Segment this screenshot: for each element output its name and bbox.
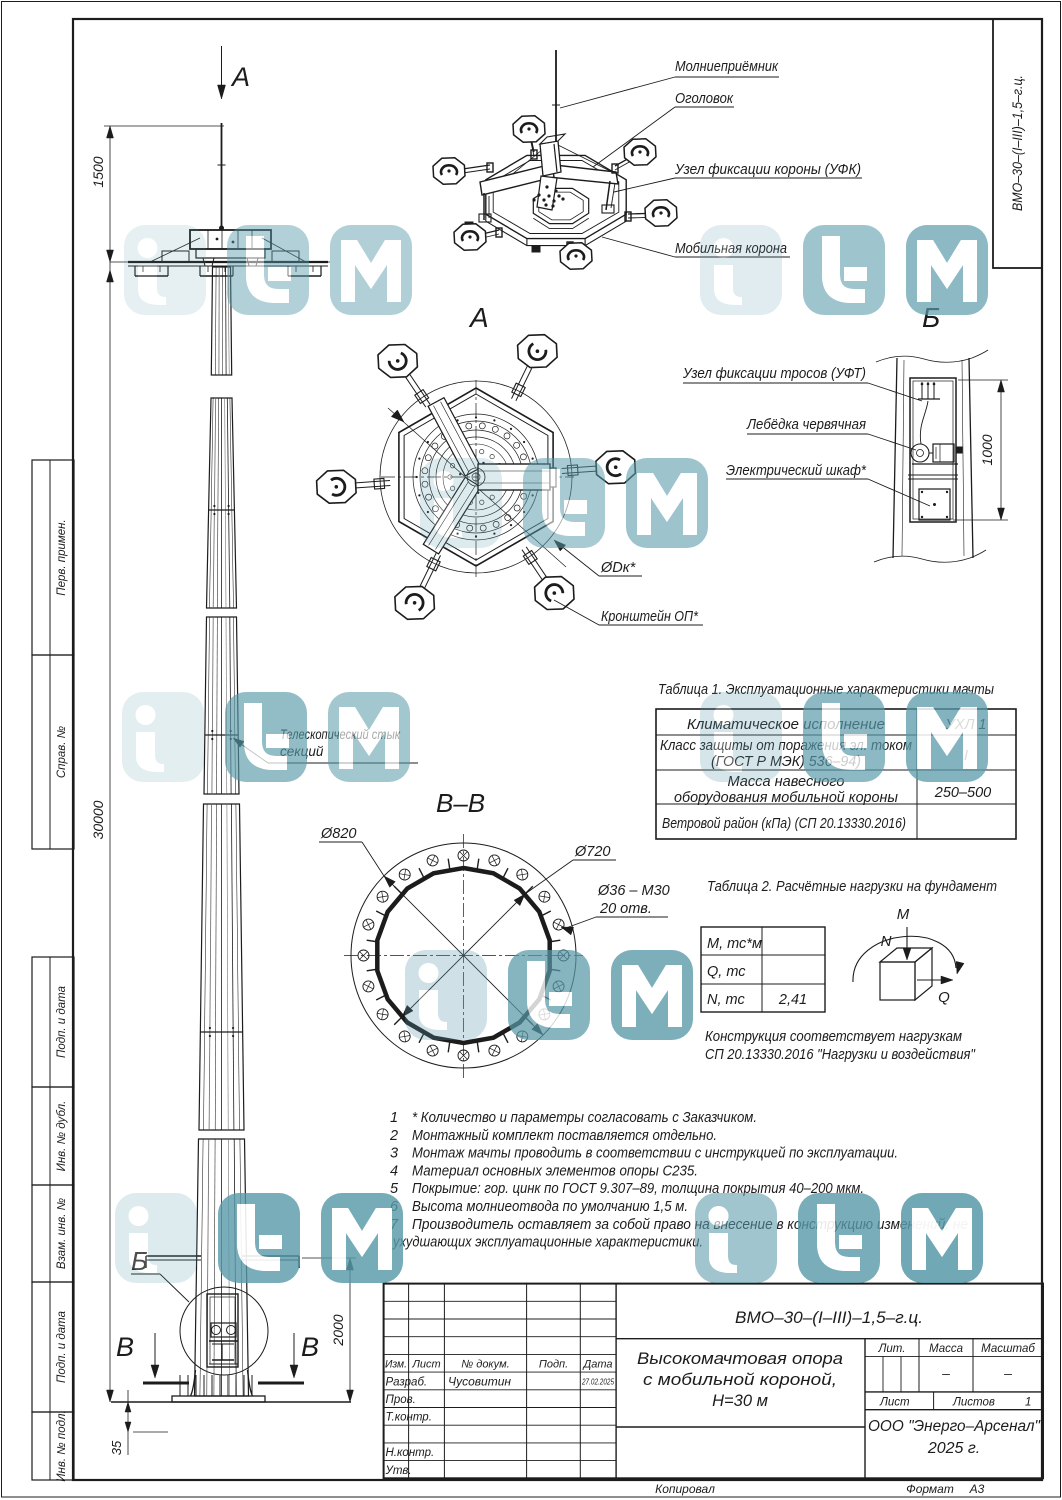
svg-text:с мобильной короной,: с мобильной короной, xyxy=(643,1371,837,1389)
svg-text:М: М xyxy=(897,906,910,923)
svg-text:1: 1 xyxy=(1025,1397,1031,1409)
svg-text:Электрический шкаф*: Электрический шкаф* xyxy=(726,463,867,479)
svg-text:20 отв.: 20 отв. xyxy=(599,901,652,917)
svg-text:Покрытие: гор. цинк по ГОСТ 9.: Покрытие: гор. цинк по ГОСТ 9.307–89, то… xyxy=(412,1181,864,1197)
svg-text:5: 5 xyxy=(390,1181,399,1197)
svg-text:Разраб.: Разраб. xyxy=(386,1376,428,1388)
svg-text:Пров.: Пров. xyxy=(386,1394,416,1406)
svg-text:В: В xyxy=(116,1332,134,1362)
svg-text:1000: 1000 xyxy=(979,434,995,465)
svg-text:Конструкция соответствует нагр: Конструкция соответствует нагрузкам xyxy=(705,1029,962,1045)
svg-text:Н.контр.: Н.контр. xyxy=(386,1447,435,1459)
svg-text:Масштаб: Масштаб xyxy=(981,1343,1035,1355)
svg-text:Q: Q xyxy=(938,989,950,1006)
svg-text:Масса: Масса xyxy=(929,1343,963,1355)
svg-text:ООО "Энерго–Арсенал": ООО "Энерго–Арсенал" xyxy=(868,1418,1041,1435)
svg-text:А3: А3 xyxy=(969,1482,985,1496)
svg-text:Оголовок: Оголовок xyxy=(675,91,734,107)
svg-text:Узел фиксации тросов (УФТ): Узел фиксации тросов (УФТ) xyxy=(682,366,866,382)
svg-text:Узел фиксации короны (УФК): Узел фиксации короны (УФК) xyxy=(674,162,861,178)
svg-text:Ø720: Ø720 xyxy=(574,844,610,860)
svg-text:А: А xyxy=(468,302,489,333)
svg-text:2: 2 xyxy=(389,1128,398,1144)
svg-text:Формат: Формат xyxy=(906,1482,954,1496)
svg-text:Высокомачтовая опора: Высокомачтовая опора xyxy=(637,1350,843,1368)
svg-text:Т.контр.: Т.контр. xyxy=(386,1412,432,1424)
svg-text:Подп. и дата: Подп. и дата xyxy=(56,1311,68,1383)
svg-text:М, тс*м: М, тс*м xyxy=(707,936,762,952)
svg-text:Монтажный комплект поставляетс: Монтажный комплект поставляется отдельно… xyxy=(412,1128,717,1144)
svg-text:Материал основных элементов оп: Материал основных элементов опоры С235. xyxy=(412,1163,698,1179)
svg-text:Перв. примен.: Перв. примен. xyxy=(56,519,68,595)
svg-text:Подп. и дата: Подп. и дата xyxy=(56,986,68,1058)
svg-text:ВМО–30–(I–III)–1,5–г.ц.: ВМО–30–(I–III)–1,5–г.ц. xyxy=(1009,75,1025,211)
svg-text:N: N xyxy=(881,933,892,950)
svg-text:Справ. №: Справ. № xyxy=(56,725,68,778)
svg-text:* Количество и параметры согла: * Количество и параметры согласовать с З… xyxy=(412,1110,757,1126)
svg-text:1: 1 xyxy=(390,1110,398,1126)
svg-text:Ø820: Ø820 xyxy=(320,826,356,842)
svg-text:N, тс: N, тс xyxy=(707,992,745,1008)
svg-text:Подп.: Подп. xyxy=(539,1359,568,1371)
svg-text:3: 3 xyxy=(390,1146,398,1162)
svg-text:ØDк*: ØDк* xyxy=(600,560,637,576)
svg-text:Дата: Дата xyxy=(581,1359,612,1371)
svg-text:Утв.: Утв. xyxy=(385,1465,412,1477)
svg-text:Копировал: Копировал xyxy=(655,1482,715,1496)
svg-text:Н=30 м: Н=30 м xyxy=(712,1392,768,1410)
svg-text:–: – xyxy=(1003,1365,1012,1381)
svg-text:Лебёдка червячная: Лебёдка червячная xyxy=(746,417,866,433)
svg-text:Изм.: Изм. xyxy=(385,1359,407,1371)
svg-text:1500: 1500 xyxy=(90,156,106,187)
svg-text:Инв. № подл.: Инв. № подл. xyxy=(56,1410,68,1481)
svg-text:Лист: Лист xyxy=(411,1359,440,1371)
svg-text:Кронштейн ОП*: Кронштейн ОП* xyxy=(601,609,699,625)
svg-text:35: 35 xyxy=(109,1440,124,1455)
svg-text:ВМО–30–(I–III)–1,5–г.ц.: ВМО–30–(I–III)–1,5–г.ц. xyxy=(735,1308,923,1327)
svg-text:В–В: В–В xyxy=(436,788,485,818)
svg-text:№ докум.: № докум. xyxy=(461,1359,509,1371)
svg-text:27.02.2025: 27.02.2025 xyxy=(581,1377,614,1386)
svg-text:СП 20.13330.2016 "Нагрузки и в: СП 20.13330.2016 "Нагрузки и воздействия… xyxy=(705,1047,976,1063)
svg-text:Монтаж мачты проводить в соотв: Монтаж мачты проводить в соответствии с … xyxy=(412,1146,898,1162)
svg-text:250–500: 250–500 xyxy=(934,785,991,801)
svg-text:Высота молниеотвода по умолчан: Высота молниеотвода по умолчанию 1,5 м. xyxy=(412,1199,688,1215)
svg-text:2025 г.: 2025 г. xyxy=(927,1440,980,1457)
svg-text:2000: 2000 xyxy=(330,1314,346,1346)
svg-text:ухудшающих эксплуатационные ха: ухудшающих эксплуатационные характеристи… xyxy=(392,1235,703,1251)
svg-text:В: В xyxy=(301,1332,319,1362)
svg-text:Q, тс: Q, тс xyxy=(707,964,746,980)
svg-text:Чусовитин: Чусовитин xyxy=(448,1374,511,1388)
svg-text:Таблица 2. Расчётные нагрузки: Таблица 2. Расчётные нагрузки на фундаме… xyxy=(707,879,997,895)
svg-text:оборудования мобильной короны: оборудования мобильной короны xyxy=(674,790,898,806)
svg-text:А: А xyxy=(230,62,250,92)
svg-text:Ветровой район (кПа) (СП 20.13: Ветровой район (кПа) (СП 20.13330.2016) xyxy=(662,816,906,832)
svg-text:Молниеприёмник: Молниеприёмник xyxy=(675,59,779,75)
svg-text:Ø36 – М30: Ø36 – М30 xyxy=(597,883,670,899)
svg-text:Лит.: Лит. xyxy=(878,1343,906,1355)
svg-text:30000: 30000 xyxy=(90,800,106,839)
svg-text:Инв. № дубл.: Инв. № дубл. xyxy=(56,1101,68,1172)
svg-text:Листов: Листов xyxy=(952,1397,995,1409)
svg-text:Лист: Лист xyxy=(879,1397,910,1409)
svg-text:2,41: 2,41 xyxy=(778,992,807,1008)
svg-text:4: 4 xyxy=(390,1163,398,1179)
svg-text:Взам. инв. №: Взам. инв. № xyxy=(56,1197,68,1269)
svg-text:–: – xyxy=(941,1365,950,1381)
svg-text:Производитель оставляет за соб: Производитель оставляет за собой право н… xyxy=(412,1217,968,1233)
